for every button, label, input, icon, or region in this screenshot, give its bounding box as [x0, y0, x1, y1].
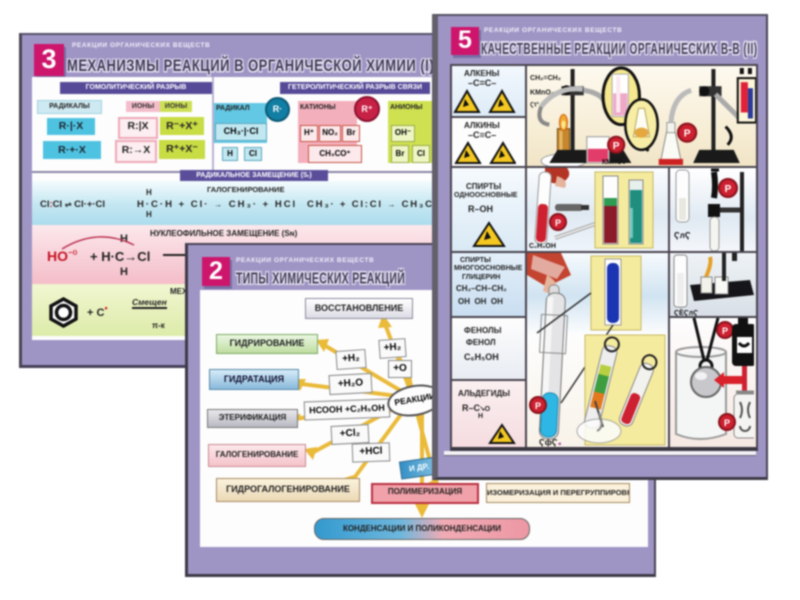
svg-text:Р: Р — [684, 129, 691, 140]
svg-text:Р: Р — [613, 141, 620, 152]
svg-text:Р: Р — [725, 184, 732, 195]
svg-text:CH₂=CH₂: CH₂=CH₂ — [530, 74, 561, 82]
svg-text:Р: Р — [555, 218, 561, 228]
svg-text:Ҁt°: Ҁt° — [530, 102, 539, 108]
svg-text:КМnO₄: КМnO₄ — [602, 158, 626, 166]
svg-text:ҀфҀ₄: ҀфҀ₄ — [539, 438, 562, 447]
svg-text:Р: Р — [535, 401, 541, 411]
svg-text:С₂Н₅ОН: С₂Н₅ОН — [529, 243, 556, 250]
svg-text:ҀЀҀлҀ: ҀЀҀлҀ — [674, 308, 698, 316]
svg-text:Р: Р — [724, 418, 730, 428]
svg-text:Р: Р — [722, 326, 728, 336]
svg-text:ҀлҀ: ҀлҀ — [674, 231, 691, 240]
